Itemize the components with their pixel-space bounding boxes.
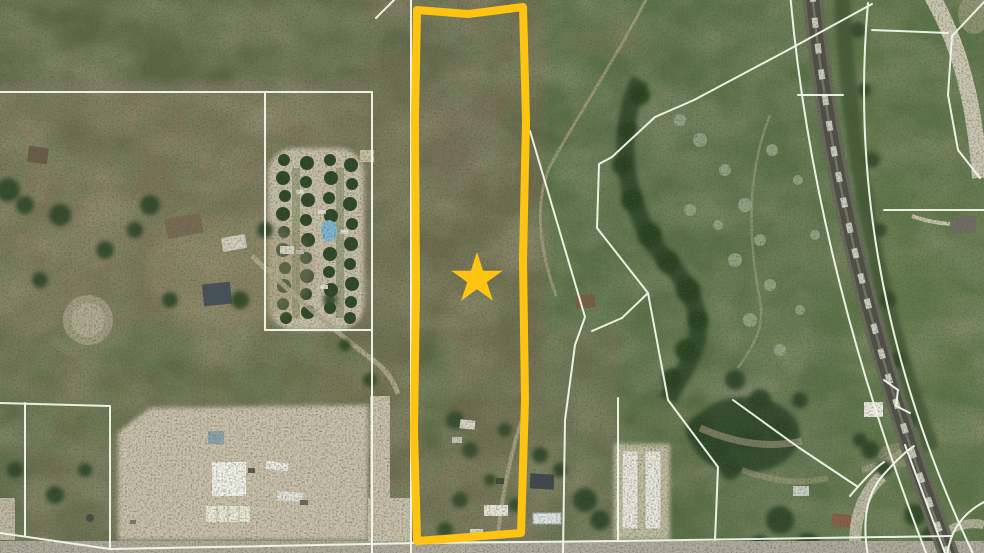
aerial-map[interactable] [0, 0, 984, 553]
